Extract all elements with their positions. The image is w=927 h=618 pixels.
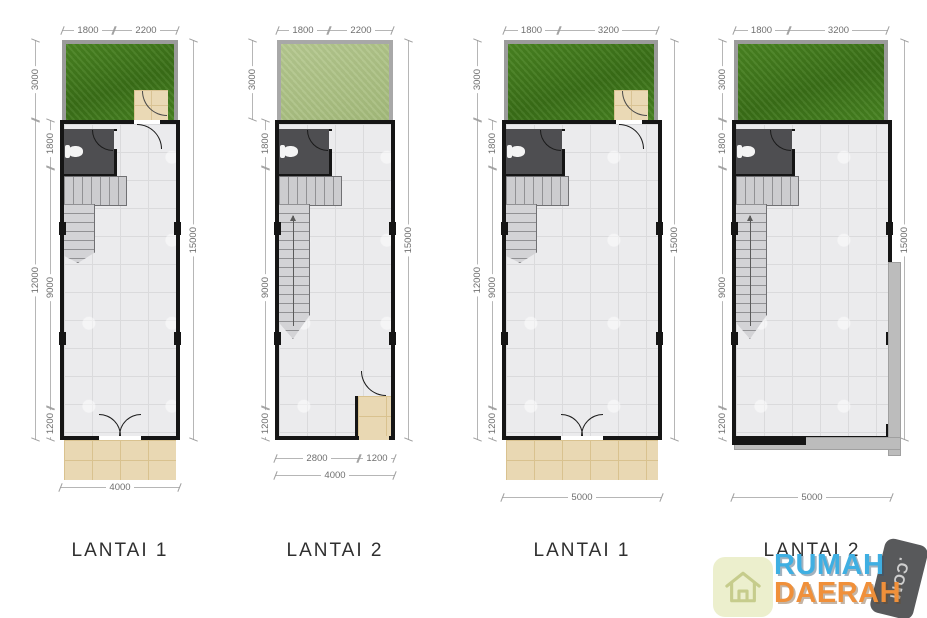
dim-top-left: 1800 xyxy=(504,25,559,36)
dim-value: 2200 xyxy=(347,25,374,36)
dim-value: 3000 xyxy=(472,66,483,93)
door-opening xyxy=(114,131,117,149)
logo-word-daerah: DAERAH xyxy=(774,579,901,608)
garden-below xyxy=(734,40,888,120)
dim-total-width: 5000 xyxy=(732,492,892,503)
bathroom xyxy=(736,129,795,177)
floorplan-sheet: 1800 2200 3000 12000 1800 9000 1200 1500… xyxy=(0,0,927,618)
dim-bottom-room: 2800 xyxy=(275,453,359,464)
house-footprint xyxy=(732,120,892,440)
balcony-edge xyxy=(359,436,389,440)
wall-column xyxy=(886,222,893,235)
dim-top-right: 2200 xyxy=(329,25,393,36)
dim-value: 1200 xyxy=(363,453,390,464)
door-opening xyxy=(329,131,332,149)
floorplan-1-lantai-1: 1800 2200 3000 12000 1800 9000 1200 1500… xyxy=(22,12,252,602)
dim-total-width: 4000 xyxy=(275,470,395,481)
dim-value: 3200 xyxy=(825,25,852,36)
stair-direction-arrow xyxy=(293,216,294,326)
parapet-wall xyxy=(732,436,806,445)
dim-top-left: 1800 xyxy=(734,25,789,36)
dim-seg-main: 9000 xyxy=(487,168,498,408)
floor-label: LANTAI 1 xyxy=(482,540,682,562)
dim-seg-porch: 1200 xyxy=(45,408,56,440)
house-footprint xyxy=(502,120,662,440)
dim-seg-main: 9000 xyxy=(260,168,271,408)
dim-value: 9000 xyxy=(717,274,728,301)
wall-column xyxy=(274,332,281,345)
porch-tiles xyxy=(506,440,658,480)
dim-seg-bath: 1800 xyxy=(487,120,498,168)
house-footprint xyxy=(60,120,180,440)
dim-value: 4000 xyxy=(106,482,133,493)
dim-value: 1800 xyxy=(717,130,728,157)
dim-value: 1800 xyxy=(74,25,101,36)
dim-garden-depth: 3000 xyxy=(472,40,483,120)
dim-value: 15000 xyxy=(669,224,680,256)
entry-landing xyxy=(614,90,648,120)
wall-column xyxy=(501,222,508,235)
dim-value: 12000 xyxy=(472,264,483,296)
dim-total-width: 4000 xyxy=(60,482,180,493)
house-footprint xyxy=(275,120,395,440)
bathroom xyxy=(506,129,565,177)
toilet-fixture xyxy=(740,146,755,157)
balcony-tiles xyxy=(355,396,391,436)
porch-tiles xyxy=(64,440,176,480)
floorplan-1-lantai-2: 1800 2200 3000 1800 9000 1200 15000 2800… xyxy=(237,12,467,602)
dim-value: 2200 xyxy=(132,25,159,36)
dim-value: 15000 xyxy=(188,224,199,256)
door-swing xyxy=(92,130,113,151)
dim-value: 3000 xyxy=(717,66,728,93)
dim-value: 1800 xyxy=(45,130,56,157)
door-swing xyxy=(540,130,561,151)
wall-column xyxy=(731,332,738,345)
dim-value: 12000 xyxy=(30,264,41,296)
door-opening xyxy=(562,131,565,149)
dim-seg-main: 9000 xyxy=(45,168,56,408)
balcony-ledge-right xyxy=(888,262,901,456)
wall-column xyxy=(174,332,181,345)
garden xyxy=(504,40,658,120)
dim-value: 1200 xyxy=(45,410,56,437)
toilet-fixture xyxy=(283,146,298,157)
dim-bottom-balcony: 1200 xyxy=(359,453,395,464)
toilet-fixture xyxy=(510,146,525,157)
entry-landing xyxy=(134,90,168,120)
floorplan-2-lantai-2: 1800 3200 3000 1800 9000 1200 15000 5000 xyxy=(692,12,922,602)
dim-value: 1200 xyxy=(260,410,271,437)
dim-total-depth: 15000 xyxy=(188,40,199,440)
dim-seg-bath: 1800 xyxy=(45,120,56,168)
dim-house-depth: 12000 xyxy=(30,120,41,440)
dim-total-depth: 15000 xyxy=(403,40,414,440)
wall-column xyxy=(731,222,738,235)
stair-direction-arrow xyxy=(750,216,751,326)
home-icon xyxy=(713,557,773,617)
dim-value: 1800 xyxy=(260,130,271,157)
dim-value: 15000 xyxy=(403,224,414,256)
dim-garden-depth: 3000 xyxy=(717,40,728,120)
wall-column xyxy=(656,222,663,235)
dim-value: 1200 xyxy=(487,410,498,437)
dim-top-left: 1800 xyxy=(62,25,114,36)
dim-value: 3000 xyxy=(30,66,41,93)
dim-value: 15000 xyxy=(899,224,910,256)
dim-value: 2800 xyxy=(303,453,330,464)
logo-word-rumah: RUMAH xyxy=(774,551,884,580)
entry-double-door xyxy=(561,415,603,436)
door-swing xyxy=(137,124,162,149)
dim-seg-balcony: 1200 xyxy=(260,408,271,440)
dim-top-left: 1800 xyxy=(277,25,329,36)
staircase-lower-run xyxy=(506,204,537,263)
dim-top-right: 3200 xyxy=(559,25,658,36)
wall-column xyxy=(656,332,663,345)
dim-top-right: 2200 xyxy=(114,25,178,36)
wall-column xyxy=(501,332,508,345)
wall-column xyxy=(59,332,66,345)
dim-value: 9000 xyxy=(260,274,271,301)
staircase-upper-run xyxy=(506,176,569,206)
dim-value: 1800 xyxy=(748,25,775,36)
dim-value: 1800 xyxy=(487,130,498,157)
wall-column xyxy=(389,332,396,345)
dim-seg-bath: 1800 xyxy=(260,120,271,168)
door-swing xyxy=(307,130,328,151)
dim-seg-main: 9000 xyxy=(717,168,728,408)
door-swing xyxy=(770,130,791,151)
dim-value: 4000 xyxy=(321,470,348,481)
door-swing xyxy=(361,371,386,396)
door-opening xyxy=(792,131,795,149)
dim-seg-porch: 1200 xyxy=(487,408,498,440)
wall-column xyxy=(59,222,66,235)
dim-value: 3200 xyxy=(595,25,622,36)
bathroom xyxy=(279,129,332,177)
wall-column xyxy=(174,222,181,235)
dim-value: 5000 xyxy=(568,492,595,503)
dim-garden-depth: 3000 xyxy=(247,40,258,120)
garden xyxy=(62,40,178,120)
staircase-upper-run xyxy=(64,176,127,206)
home-icon-glyph xyxy=(721,565,765,609)
floor-label: LANTAI 1 xyxy=(20,540,220,562)
dim-total-depth: 15000 xyxy=(669,40,680,440)
garden-below xyxy=(277,40,393,120)
floorplan-2-lantai-1: 1800 3200 3000 12000 1800 9000 1200 1500… xyxy=(462,12,692,602)
dim-value: 5000 xyxy=(798,492,825,503)
dim-seg-bath: 1800 xyxy=(717,120,728,168)
staircase-lower-run xyxy=(736,204,767,339)
door-swing xyxy=(619,124,644,149)
staircase-upper-run xyxy=(736,176,799,206)
wall-column xyxy=(389,222,396,235)
wall-column xyxy=(274,222,281,235)
dim-seg-balcony: 1200 xyxy=(717,408,728,440)
dim-house-depth: 12000 xyxy=(472,120,483,440)
staircase-lower-run xyxy=(279,204,310,339)
dim-value: 9000 xyxy=(45,274,56,301)
dim-value: 1800 xyxy=(518,25,545,36)
floor-label: LANTAI 2 xyxy=(235,540,435,562)
dim-garden-depth: 3000 xyxy=(30,40,41,120)
staircase-upper-run xyxy=(279,176,342,206)
dim-value: 1800 xyxy=(289,25,316,36)
dim-top-right: 3200 xyxy=(789,25,888,36)
dim-value: 1200 xyxy=(717,410,728,437)
dim-total-width: 5000 xyxy=(502,492,662,503)
staircase-lower-run xyxy=(64,204,95,263)
rumahdaerah-logo: .COM RUMAH DAERAH xyxy=(710,545,927,618)
dim-value: 3000 xyxy=(247,66,258,93)
entry-double-door xyxy=(99,415,141,436)
dim-value: 9000 xyxy=(487,274,498,301)
bathroom xyxy=(64,129,117,177)
toilet-fixture xyxy=(68,146,83,157)
